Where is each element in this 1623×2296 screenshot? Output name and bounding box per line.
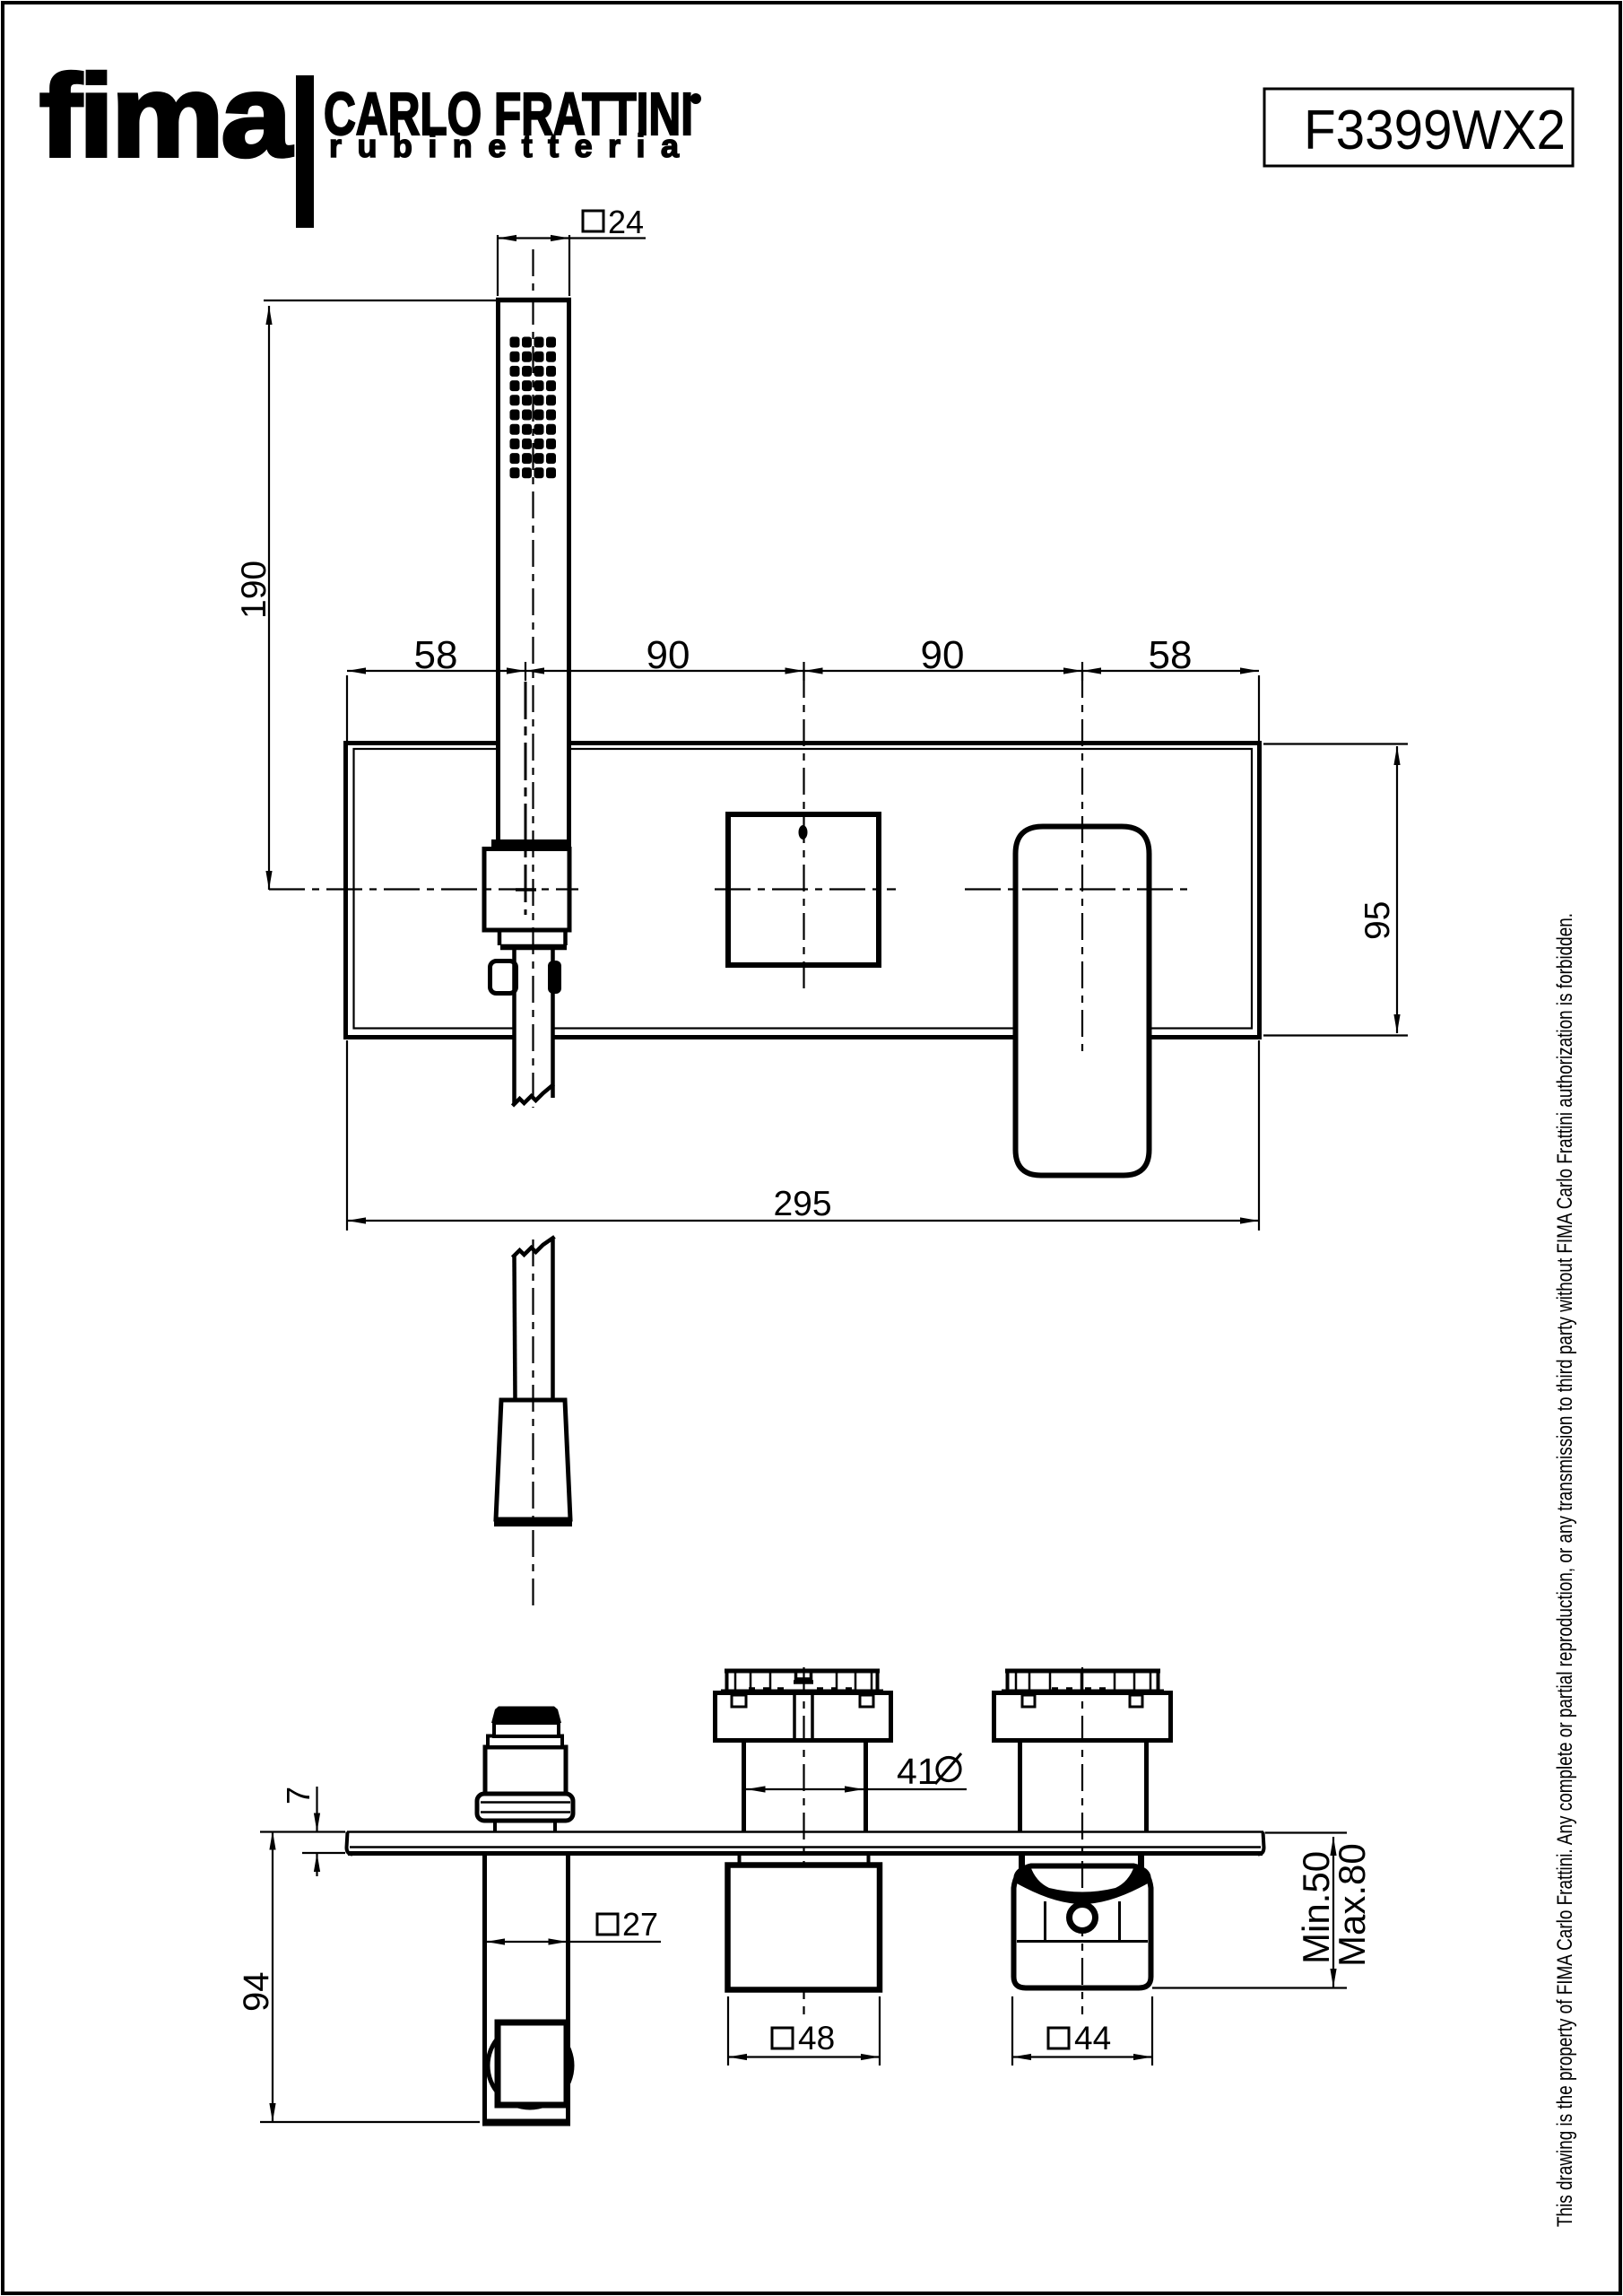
svg-text:fima: fima: [39, 50, 293, 181]
svg-text:F3399WX2: F3399WX2: [1304, 100, 1566, 161]
svg-text:48: 48: [798, 2020, 835, 2057]
svg-text:This drawing is the property o: This drawing is the property of FIMA Car…: [1553, 913, 1577, 2227]
svg-text:94: 94: [237, 1972, 276, 2013]
svg-text:44: 44: [1074, 2020, 1111, 2057]
svg-text:295: 295: [773, 1185, 831, 1223]
svg-text:41: 41: [897, 1751, 938, 1792]
svg-text:190: 190: [235, 561, 273, 619]
svg-text:90: 90: [647, 633, 690, 677]
svg-text:58: 58: [414, 633, 458, 677]
svg-text:95: 95: [1358, 901, 1397, 940]
svg-text:58: 58: [1149, 633, 1193, 677]
svg-text:7: 7: [280, 1787, 317, 1805]
svg-text:Max.80: Max.80: [1331, 1843, 1373, 1967]
svg-text:90: 90: [921, 633, 965, 677]
svg-text:27: 27: [622, 1906, 658, 1943]
svg-text:24: 24: [608, 204, 644, 240]
